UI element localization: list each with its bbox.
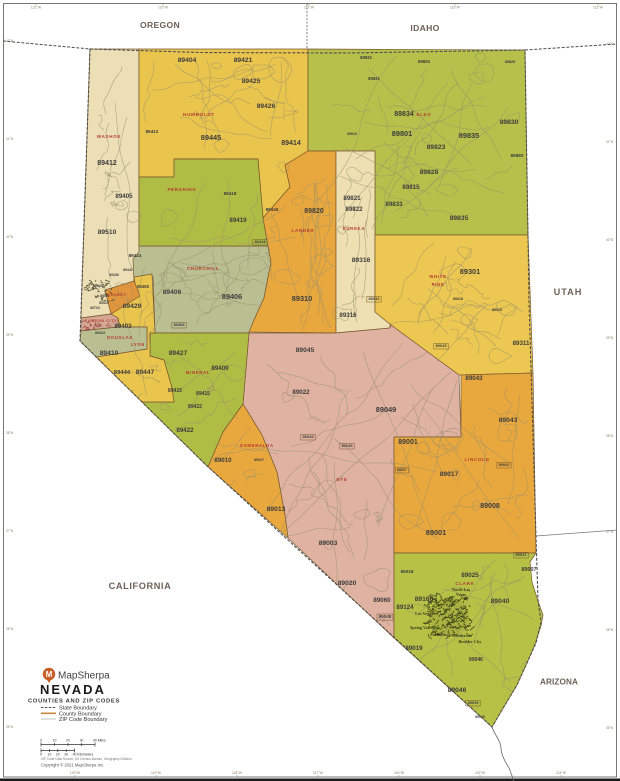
svg-text:NYE: NYE [336, 477, 347, 482]
svg-text:89421: 89421 [234, 57, 253, 64]
svg-text:89815: 89815 [347, 132, 357, 136]
svg-text:89045: 89045 [296, 347, 315, 354]
svg-text:89826: 89826 [418, 59, 430, 64]
svg-text:41°N: 41°N [606, 140, 614, 144]
svg-text:89828: 89828 [420, 169, 439, 176]
svg-text:35°N: 35°N [6, 725, 14, 729]
svg-text:89412: 89412 [146, 129, 159, 134]
svg-text:89521: 89521 [99, 301, 109, 305]
svg-text:118°W: 118°W [232, 771, 243, 775]
svg-text:89406: 89406 [222, 292, 243, 301]
svg-text:89832: 89832 [360, 55, 372, 60]
svg-text:119°W: 119°W [158, 5, 169, 9]
svg-text:89406: 89406 [173, 322, 185, 327]
svg-text:89022: 89022 [292, 389, 310, 396]
svg-text:M: M [46, 670, 53, 679]
svg-text:114°W: 114°W [556, 771, 567, 775]
svg-text:89409: 89409 [211, 365, 229, 372]
svg-text:89318: 89318 [453, 297, 463, 301]
svg-text:89013: 89013 [267, 506, 286, 513]
svg-text:89414: 89414 [281, 140, 301, 147]
svg-text:89042: 89042 [498, 462, 510, 467]
svg-text:89423: 89423 [95, 331, 105, 335]
svg-text:89020: 89020 [338, 580, 357, 587]
svg-text:89316: 89316 [352, 257, 371, 264]
svg-text:89045: 89045 [341, 443, 353, 448]
svg-text:89048: 89048 [379, 614, 392, 619]
svg-text:89883: 89883 [511, 153, 524, 158]
svg-text:89831: 89831 [368, 76, 380, 81]
svg-text:PINE: PINE [432, 282, 445, 287]
svg-text:89447: 89447 [136, 369, 155, 376]
svg-text:89049: 89049 [302, 434, 314, 439]
svg-text:119°W: 119°W [151, 771, 162, 775]
svg-text:EUREKA: EUREKA [343, 226, 365, 231]
svg-text:89410: 89410 [100, 350, 119, 357]
svg-text:LANDER: LANDER [292, 228, 315, 233]
svg-text:89316: 89316 [368, 296, 380, 301]
svg-text:DOUGLAS: DOUGLAS [107, 335, 133, 340]
svg-text:89426: 89426 [257, 103, 276, 110]
svg-text:0: 0 [40, 753, 42, 757]
svg-text:89166: 89166 [415, 596, 434, 603]
svg-text:89018: 89018 [401, 569, 414, 574]
svg-text:117°W: 117°W [304, 5, 315, 9]
svg-text:89418: 89418 [224, 191, 237, 196]
svg-text:89835: 89835 [459, 131, 480, 140]
svg-text:115°W: 115°W [475, 771, 486, 775]
svg-text:38°N: 38°N [6, 431, 14, 435]
svg-text:89424: 89424 [129, 253, 142, 258]
svg-text:89039: 89039 [475, 715, 485, 719]
svg-text:IDAHO: IDAHO [410, 23, 439, 33]
svg-text:89043: 89043 [499, 417, 518, 424]
svg-text:36°N: 36°N [6, 627, 14, 631]
svg-text:UTAH: UTAH [554, 287, 583, 297]
svg-text:STOREY: STOREY [107, 293, 126, 297]
svg-text:89043: 89043 [465, 375, 483, 382]
svg-text:30: 30 [80, 739, 84, 743]
svg-text:89060: 89060 [373, 597, 391, 604]
svg-text:89436: 89436 [109, 273, 119, 277]
svg-text:LYON: LYON [131, 342, 145, 347]
svg-text:89049: 89049 [376, 405, 397, 414]
svg-text:89021: 89021 [515, 552, 527, 557]
svg-text:89311: 89311 [513, 340, 530, 347]
svg-text:CALIFORNIA: CALIFORNIA [109, 581, 172, 591]
svg-text:89422: 89422 [188, 404, 202, 410]
svg-text:89001: 89001 [426, 528, 447, 537]
svg-text:121°W: 121°W [31, 5, 42, 9]
svg-text:LINCOLN: LINCOLN [465, 457, 490, 462]
svg-text:89704: 89704 [90, 306, 100, 310]
svg-text:89412: 89412 [97, 160, 117, 167]
svg-text:89510: 89510 [98, 229, 117, 236]
svg-text:89406: 89406 [163, 289, 182, 296]
svg-text:HUMBOLDT: HUMBOLDT [183, 112, 215, 117]
svg-text:89124: 89124 [396, 604, 414, 611]
svg-text:116°W: 116°W [394, 771, 405, 775]
svg-text:39°N: 39°N [6, 333, 14, 337]
svg-text:ZIP Code Data Source: US Cens: ZIP Code Data Source: US Census Bureau, … [41, 757, 132, 761]
svg-text:89830: 89830 [500, 119, 519, 126]
svg-text:89445: 89445 [266, 207, 279, 212]
svg-text:89003: 89003 [319, 540, 338, 547]
svg-text:Vegas: Vegas [456, 592, 467, 597]
svg-text:89001: 89001 [398, 439, 418, 446]
svg-text:89007: 89007 [522, 567, 537, 573]
svg-text:Henderson: Henderson [452, 633, 472, 638]
svg-text:CLARK: CLARK [455, 581, 474, 586]
svg-text:89431: 89431 [94, 284, 104, 288]
svg-text:117°W: 117°W [313, 771, 324, 775]
svg-text:Spring Valley: Spring Valley [410, 625, 435, 630]
svg-text:41°N: 41°N [6, 137, 14, 141]
svg-text:89422: 89422 [176, 427, 194, 434]
svg-text:Boulder City: Boulder City [458, 639, 482, 644]
svg-text:89408: 89408 [137, 284, 149, 289]
svg-text:Copyright © 2021 MapSherpa Inc: Copyright © 2021 MapSherpa Inc. [41, 763, 104, 768]
svg-text:36°N: 36°N [606, 628, 614, 632]
svg-text:89301: 89301 [460, 267, 481, 276]
svg-text:MapSherpa: MapSherpa [58, 671, 110, 682]
svg-text:89310: 89310 [292, 294, 313, 303]
svg-text:89047: 89047 [254, 458, 264, 462]
svg-text:30: 30 [64, 753, 68, 757]
svg-text:CARSON CITY: CARSON CITY [85, 319, 117, 323]
svg-text:89025: 89025 [461, 572, 479, 579]
svg-text:89442: 89442 [123, 268, 133, 272]
svg-text:40°N: 40°N [6, 235, 14, 239]
svg-text:10: 10 [48, 753, 52, 757]
svg-text:89820: 89820 [304, 208, 324, 215]
svg-text:89425: 89425 [242, 78, 261, 85]
svg-text:89067: 89067 [397, 468, 407, 472]
svg-text:NEVADA: NEVADA [40, 682, 106, 697]
svg-text:Las Vegas: Las Vegas [415, 611, 433, 616]
svg-text:89823: 89823 [427, 144, 446, 151]
svg-text:COUNTIES AND ZIP CODES: COUNTIES AND ZIP CODES [28, 699, 120, 705]
svg-text:89008: 89008 [480, 503, 500, 510]
svg-text:20: 20 [56, 753, 60, 757]
svg-text:89010: 89010 [214, 457, 232, 464]
svg-text:89315: 89315 [492, 308, 502, 312]
svg-text:WASHOE: WASHOE [97, 134, 121, 139]
svg-text:89427: 89427 [169, 350, 188, 357]
svg-text:OREGON: OREGON [140, 20, 180, 30]
svg-text:89834: 89834 [394, 111, 414, 118]
svg-text:MINERAL: MINERAL [186, 370, 210, 375]
svg-text:89415: 89415 [168, 388, 182, 394]
svg-text:35°N: 35°N [606, 726, 614, 730]
svg-text:ZIP Code Boundary: ZIP Code Boundary [59, 717, 107, 723]
svg-text:89815: 89815 [402, 184, 420, 191]
svg-text:40 Miles: 40 Miles [93, 739, 106, 743]
svg-text:ELKO: ELKO [417, 112, 432, 117]
svg-text:37°N: 37°N [6, 529, 14, 533]
svg-text:WHITE: WHITE [429, 274, 446, 279]
svg-text:89046: 89046 [448, 687, 467, 694]
svg-text:89445: 89445 [201, 133, 222, 142]
svg-text:89017: 89017 [440, 471, 459, 478]
svg-text:39°N: 39°N [606, 336, 614, 340]
svg-text:89835: 89835 [450, 215, 469, 222]
svg-text:113°W: 113°W [593, 5, 604, 9]
svg-text:ESMERALDA: ESMERALDA [240, 443, 274, 448]
svg-text:89419: 89419 [254, 239, 266, 244]
svg-text:89040: 89040 [491, 598, 510, 605]
svg-text:89833: 89833 [385, 201, 403, 208]
svg-text:89403: 89403 [114, 323, 132, 330]
svg-text:115°W: 115°W [450, 5, 461, 9]
svg-text:40 Kilometers: 40 Kilometers [73, 753, 94, 757]
svg-text:89429: 89429 [123, 303, 142, 310]
svg-text:0: 0 [40, 739, 42, 743]
svg-text:10: 10 [53, 739, 57, 743]
svg-text:89822: 89822 [345, 206, 363, 213]
svg-text:89444: 89444 [114, 370, 131, 376]
svg-text:38°N: 38°N [606, 434, 614, 438]
svg-text:CHURCHILL: CHURCHILL [187, 266, 220, 271]
svg-text:89419: 89419 [229, 217, 247, 224]
svg-text:89415: 89415 [196, 391, 210, 397]
svg-text:89801: 89801 [392, 129, 413, 138]
svg-text:89039: 89039 [467, 700, 479, 705]
svg-text:89825: 89825 [505, 60, 516, 64]
svg-text:89405: 89405 [115, 193, 133, 200]
svg-text:PERSHING: PERSHING [167, 187, 196, 192]
svg-text:20: 20 [66, 739, 70, 743]
svg-text:Paradise: Paradise [430, 632, 446, 637]
svg-text:89404: 89404 [178, 57, 197, 64]
svg-text:40°N: 40°N [606, 238, 614, 242]
svg-text:ARIZONA: ARIZONA [540, 678, 578, 687]
svg-text:89316: 89316 [339, 312, 357, 319]
svg-text:120°W: 120°W [70, 771, 81, 775]
svg-text:89019: 89019 [405, 645, 423, 652]
svg-text:89045: 89045 [435, 343, 447, 348]
svg-text:89046: 89046 [469, 657, 483, 663]
svg-text:89821: 89821 [343, 195, 361, 202]
